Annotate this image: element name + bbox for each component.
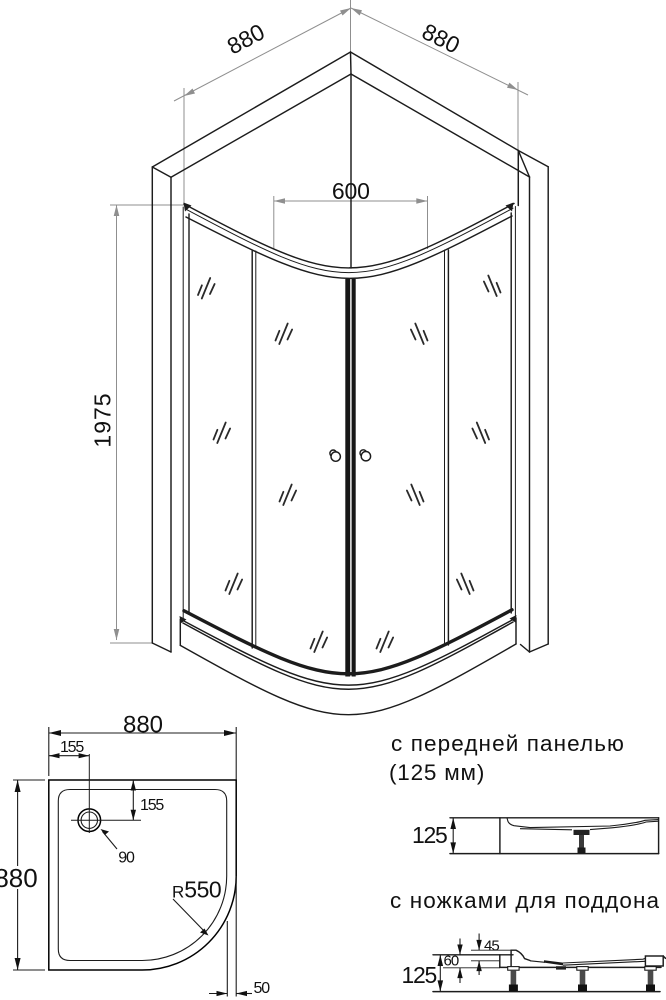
- svg-text:880: 880: [123, 712, 163, 739]
- svg-text:90: 90: [118, 850, 135, 867]
- svg-text:155: 155: [140, 797, 164, 814]
- svg-text:45: 45: [484, 938, 499, 955]
- svg-text:1975: 1975: [90, 392, 116, 447]
- svg-text:125: 125: [412, 822, 447, 848]
- svg-text:50: 50: [254, 980, 271, 997]
- svg-text:с передней панелью: с передней панелью: [391, 731, 625, 756]
- svg-text:155: 155: [60, 739, 84, 756]
- svg-text:(125 мм): (125 мм): [389, 760, 485, 785]
- svg-text:60: 60: [444, 953, 459, 970]
- svg-text:880: 880: [0, 863, 38, 893]
- svg-text:125: 125: [402, 962, 437, 988]
- svg-text:с ножками для поддона: с ножками для поддона: [390, 888, 660, 913]
